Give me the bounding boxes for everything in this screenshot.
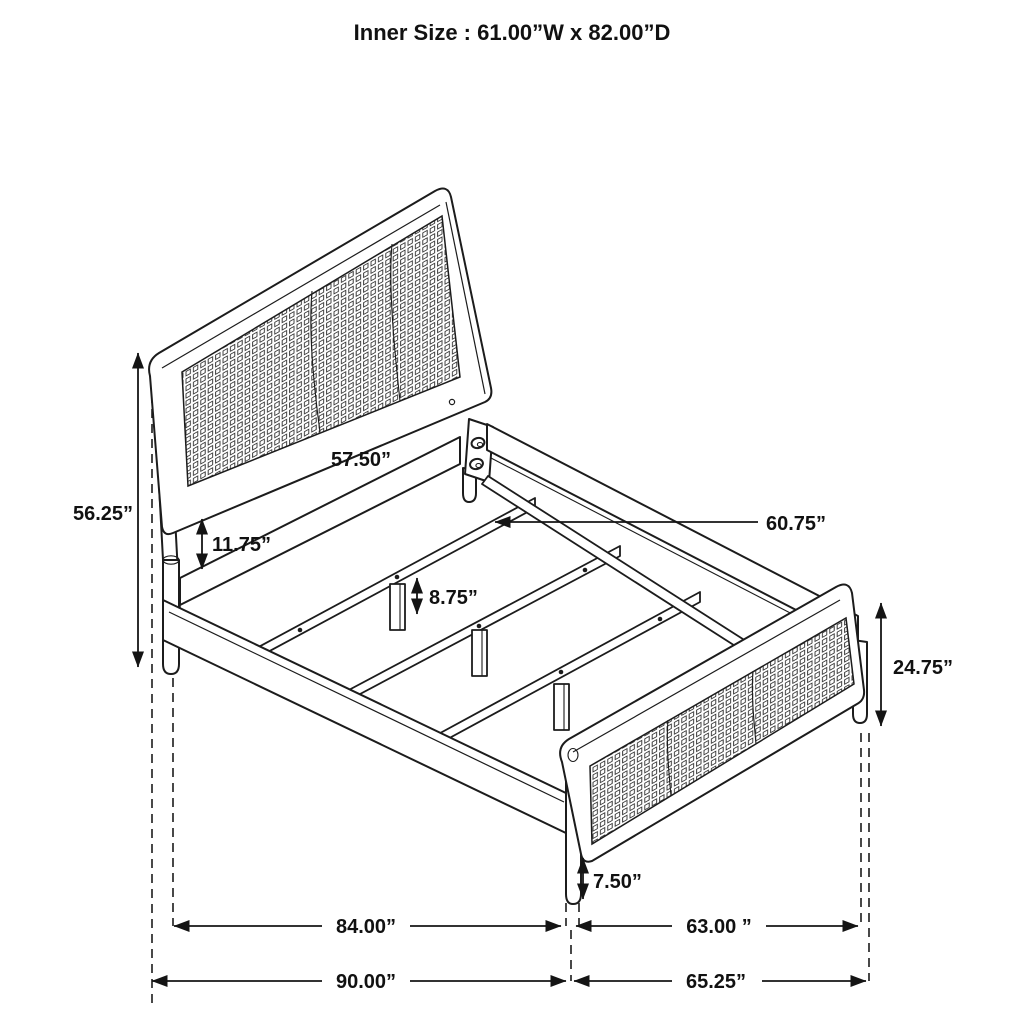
label-headboard-height: 56.25”	[73, 503, 133, 525]
label-inner-length: 84.00”	[336, 916, 396, 938]
label-headboard-width: 57.50”	[331, 449, 391, 471]
center-leg-3	[554, 684, 569, 730]
dimension-footboard-leg-height: 7.50”	[583, 858, 642, 899]
dimension-headboard-height: 56.25”	[73, 353, 138, 667]
slat-1	[240, 498, 535, 667]
label-footboard-inner-width: 63.00 ”	[686, 916, 752, 938]
slat-screw	[477, 624, 482, 629]
label-panel-gap: 11.75”	[212, 534, 271, 556]
dimension-inner-length: 84.00”	[174, 916, 561, 938]
dimension-footboard-inner-width: 63.00 ”	[576, 916, 858, 938]
diagram-title: Inner Size : 61.00”W x 82.00”D	[354, 20, 671, 45]
label-slat-length: 60.75”	[766, 513, 826, 535]
slat-screw	[658, 617, 663, 622]
dimension-outer-length: 90.00”	[152, 971, 566, 993]
diagram-canvas: Inner Size : 61.00”W x 82.00”D	[0, 0, 1024, 1024]
slat-screw	[559, 670, 564, 675]
label-footboard-height: 24.75”	[893, 657, 953, 679]
bed-dimension-diagram: Inner Size : 61.00”W x 82.00”D	[0, 0, 1024, 1024]
dimension-footboard-height: 24.75”	[881, 603, 953, 726]
dimension-center-leg-height: 8.75”	[417, 578, 478, 614]
dimension-headboard-width: 57.50”	[331, 449, 391, 471]
center-leg-2	[472, 630, 487, 676]
slat-screw	[395, 575, 400, 580]
label-outer-length: 90.00”	[336, 971, 396, 993]
label-center-leg-height: 8.75”	[429, 587, 478, 609]
slat-screw	[298, 628, 303, 633]
label-footboard-leg-height: 7.50”	[593, 871, 642, 893]
front-side-rail	[163, 600, 568, 834]
slat-screw	[583, 568, 588, 573]
label-footboard-outer-width: 65.25”	[686, 971, 746, 993]
center-leg-1	[390, 584, 405, 630]
dimension-footboard-outer-width: 65.25”	[574, 971, 866, 993]
slat-2	[330, 546, 620, 710]
